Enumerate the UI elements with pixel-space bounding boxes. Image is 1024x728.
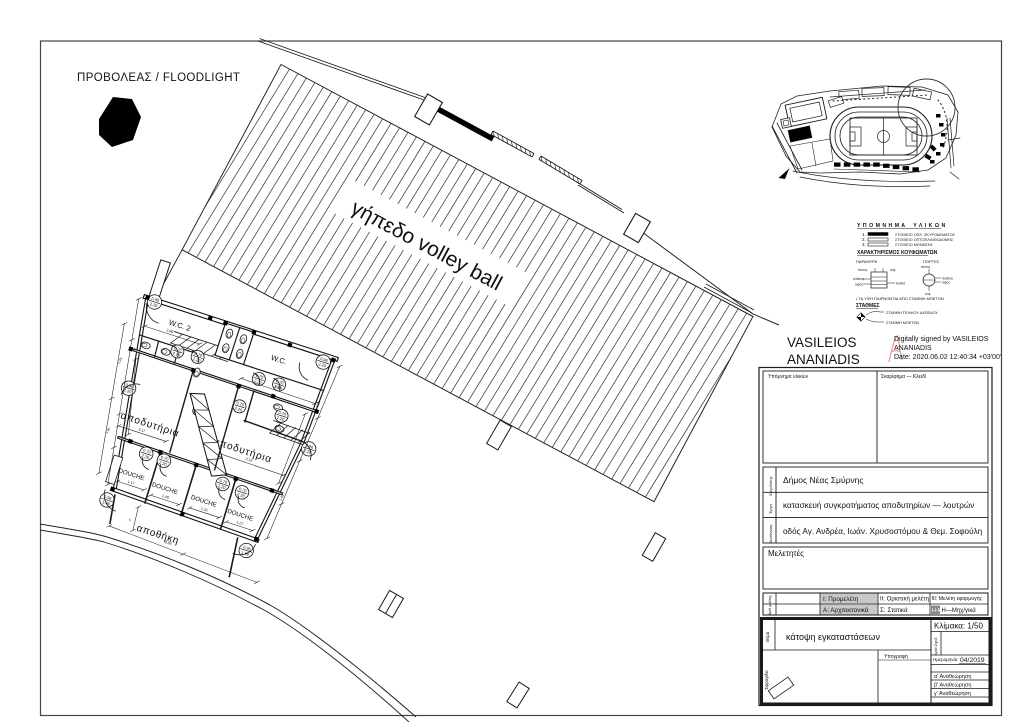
svg-text:ΣΤΟΙΧΕΙΟ ΟΠΤΟΠΛΙΝΘΟΔΟΜΗΣ: ΣΤΟΙΧΕΙΟ ΟΠΤΟΠΛΙΝΘΟΔΟΜΗΣ (895, 238, 954, 242)
svg-text:ΠΡΟΒΟΛΕΑΣ / FLOODLIGHT: ΠΡΟΒΟΛΕΑΣ / FLOODLIGHT (77, 72, 240, 84)
svg-text:Μελετητές: Μελετητές (768, 549, 804, 558)
svg-text:α' Αναθεώρηση: α' Αναθεώρηση (934, 673, 971, 680)
svg-text:ΧΑΡΑΚΤΗΡΙΣΜΟΣ ΚΟΥΦΩΜΑΤΩΝ: ΧΑΡΑΚΤΗΡΙΣΜΟΣ ΚΟΥΦΩΜΑΤΩΝ (857, 250, 938, 256)
svg-text:ύψος: ύψος (942, 281, 950, 285)
svg-text:Α: Αρχιτεκτονικά: Α: Αρχιτεκτονικά (823, 606, 869, 614)
svg-text:Η—Μηχ/γικά: Η—Μηχ/γικά (942, 607, 977, 614)
svg-text:Ι: Προμελέτη: Ι: Προμελέτη (823, 595, 859, 603)
svg-text:ANANIADIS: ANANIADIS (787, 352, 860, 367)
svg-text:ΣΤΑΘΜΗ ΤΕΛΙΚΟΥ ΔΑΠΕΔΟΥ: ΣΤΑΘΜΗ ΤΕΛΙΚΟΥ ΔΑΠΕΔΟΥ (886, 311, 938, 315)
svg-text:ΙΙΙ: Μελέτη εφαρμογής: ΙΙΙ: Μελέτη εφαρμογής (932, 595, 983, 602)
svg-text:ΣΤΟΙΧΕΙΟ ΜΟΝΩΣΗΣ: ΣΤΟΙΧΕΙΟ ΜΟΝΩΣΗΣ (895, 243, 934, 247)
svg-text:ύψος: ύψος (855, 283, 863, 287)
svg-text:Εργοδότης: Εργοδότης (768, 476, 773, 495)
svg-text:κατασκευή συγκροτήματος αποδυτ: κατασκευή συγκροτήματος αποδυτηρίων — λο… (783, 501, 974, 510)
svg-text:γ' Αναθεώρηση: γ' Αναθεώρηση (934, 690, 971, 697)
svg-text:04/2019: 04/2019 (960, 657, 985, 664)
svg-text:Θέμα: Θέμα (764, 631, 770, 642)
svg-text:Δήμος Νέας Σμύρνης: Δήμος Νέας Σμύρνης (783, 475, 864, 485)
svg-text:ANANIADIS: ANANIADIS (894, 345, 932, 352)
svg-text:υ/ψ: υ/ψ (890, 268, 896, 272)
svg-text:Υπόμνημα υλικών: Υπόμνημα υλικών (768, 373, 809, 380)
svg-text:ΠΟΡΤΕΣ: ΠΟΡΤΕΣ (923, 259, 940, 264)
svg-text:Σφραγίδα: Σφραγίδα (764, 670, 769, 690)
svg-text:ΣΤΟΙΧΕΙΟ ΟΠΛ. ΣΚΥΡΟΔΕΜΑΤΟΣ: ΣΤΟΙΧΕΙΟ ΟΠΛ. ΣΚΥΡΟΔΕΜΑΤΟΣ (895, 233, 956, 237)
svg-text:Αριθ.Σχεδ.: Αριθ.Σχεδ. (933, 637, 938, 656)
svg-text:Ημερομηνία: Ημερομηνία (933, 657, 958, 662)
svg-text:Σ: Στατικά: Σ: Στατικά (880, 606, 908, 614)
svg-text:Digitally signed by VASILEIOS: Digitally signed by VASILEIOS (894, 336, 989, 343)
svg-text:τύπος: τύπος (921, 265, 931, 269)
svg-text:3.: 3. (862, 242, 866, 247)
svg-text:ποδιά: ποδιά (896, 282, 905, 286)
svg-text:• ΤΑ ΥΨΗ ΠΑΙΡΝΟΝΤΑΙ ΑΠΟ ΣΤΑΘΜΗ: • ΤΑ ΥΨΗ ΠΑΙΡΝΟΝΤΑΙ ΑΠΟ ΣΤΑΘΜΗ ΜΠΕΤΟΝ (856, 296, 944, 301)
svg-text:ΣΤΑΘΜΗ ΜΠΕΤΟΝ: ΣΤΑΘΜΗ ΜΠΕΤΟΝ (886, 321, 919, 325)
svg-text:πλάτος: πλάτος (853, 277, 864, 281)
svg-text:Date: 2020.06.02 12:40:34 +03': Date: 2020.06.02 12:40:34 +03'00' (894, 354, 1001, 361)
svg-text:Διεύθυνση: Διεύθυνση (768, 525, 773, 544)
svg-text:τύπος: τύπος (858, 268, 868, 272)
svg-text:Έργο: Έργο (768, 503, 773, 514)
svg-text:ΠΑΡΑΘΥΡΑ: ΠΑΡΑΘΥΡΑ (856, 259, 878, 264)
svg-text:ΣΤΑΘΜΕΣ: ΣΤΑΘΜΕΣ (856, 303, 880, 309)
svg-text:Αριθ.μελέτης: Αριθ.μελέτης (768, 595, 772, 615)
svg-text:Υπογραφή: Υπογραφή (884, 653, 908, 660)
svg-text:οδός Αγ. Ανδρέα, Ιωάν. Χρυσοστ: οδός Αγ. Ανδρέα, Ιωάν. Χρυσοστόμου & Θεμ… (783, 527, 983, 536)
svg-text:κάτοψη εγκαταστάσεων: κάτοψη εγκαταστάσεων (786, 632, 880, 642)
svg-text:Σκαρίφημα — Κλειδί: Σκαρίφημα — Κλειδί (881, 374, 927, 380)
svg-text:β' Αναθεώρηση: β' Αναθεώρηση (934, 682, 971, 689)
svg-text:Υ Π Ο Μ Ν Η Μ Α Υ Λ Ι Κ Ω Ν: Υ Π Ο Μ Ν Η Μ Α Υ Λ Ι Κ Ω Ν (857, 223, 946, 229)
svg-text:VASILEIOS: VASILEIOS (787, 335, 857, 350)
svg-text:ΙΙ: Οριστική μελέτη: ΙΙ: Οριστική μελέτη (880, 596, 929, 603)
svg-text:Κλίμακα: 1/50: Κλίμακα: 1/50 (934, 622, 983, 631)
